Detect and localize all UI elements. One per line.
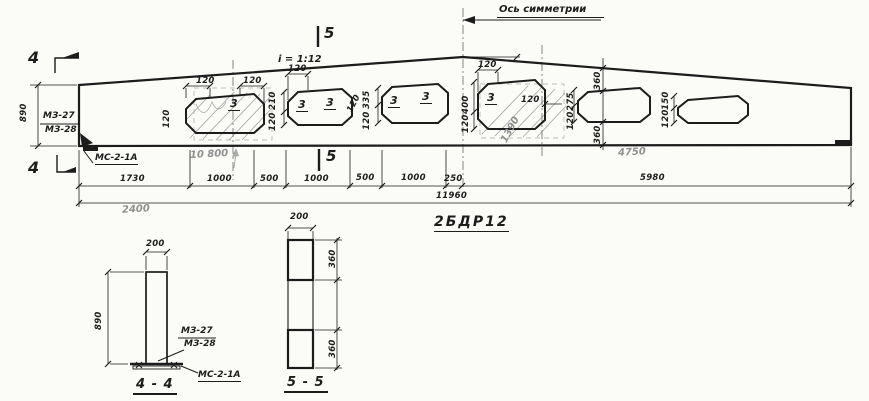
dim-5980: 5980 [640, 174, 665, 183]
dim-120-o1-right-top: 120 [243, 77, 262, 86]
section-5-5-title: 5 - 5 [284, 376, 328, 393]
part-label-mz27-section4: МЗ-27 [181, 327, 213, 336]
dim-500-b: 500 [356, 174, 375, 183]
part-label-mz28-elevation: МЗ-28 [45, 126, 77, 135]
dim-360-bottom: 360 [594, 125, 603, 144]
opening-number-o2a: 3 [296, 99, 308, 112]
dim-200-section4: 200 [146, 240, 165, 249]
axis-of-symmetry-label: Ось симметрии [497, 5, 604, 18]
bearing-plate-right [835, 140, 851, 145]
section4-marker-top: 4 [28, 50, 39, 66]
technical-drawing-sheet: 1201201202101201201203351201204001201201… [0, 0, 869, 401]
drawing-canvas [0, 0, 869, 401]
dim-890-elevation: 890 [20, 103, 29, 122]
slope-label: i = 1:12 [278, 55, 322, 65]
drawing-title: 2БДР12 [434, 215, 509, 232]
section4-marker-bottom: 4 [28, 160, 39, 176]
pencil-2400: 2400 [122, 204, 150, 215]
section5-marker-top: 5 [324, 26, 334, 41]
dim-360-top: 360 [594, 71, 603, 90]
section4-flag-top [55, 58, 79, 73]
opening-number-o1: 3 [228, 98, 240, 111]
part-label-mz27-elevation: МЗ-27 [43, 112, 75, 121]
dim-890-section4: 890 [95, 311, 104, 330]
dim-11960: 11960 [436, 192, 467, 201]
dim-120-o2-top: 120 [288, 65, 307, 74]
dim-120-o5: 120 [567, 111, 576, 130]
dimension-lines [30, 54, 854, 207]
part-label-ms21a-section4: МС-2-1А [198, 371, 241, 382]
opening-number-o3a: 3 [388, 95, 400, 108]
dim-120-o1-left: 120 [163, 109, 172, 128]
web-opening-1 [186, 94, 264, 133]
dim-200-section5: 200 [290, 213, 309, 222]
dim-1000-a: 1000 [207, 175, 232, 184]
dim-120-o2: 120 [269, 112, 278, 131]
section-4-4-view [105, 249, 183, 369]
dim-335-o3: 335 [363, 90, 372, 109]
dim-120-o1-left-top: 120 [196, 77, 215, 86]
dim-150-o6: 150 [662, 91, 671, 110]
dim-120-o4-top: 120 [478, 61, 497, 70]
dim-1000-c: 1000 [401, 174, 426, 183]
dim-360-section5-top: 360 [329, 249, 338, 268]
pencil-4750: 4750 [618, 147, 646, 158]
opening-number-o3b: 3 [420, 91, 432, 104]
part-label-ms21a-elevation: МС-2-1А [95, 154, 138, 165]
dim-120-o4: 120 [462, 114, 471, 133]
dim-1000-b: 1000 [304, 175, 329, 184]
section-4-4-title: 4 - 4 [133, 378, 177, 395]
dim-400-o4: 400 [462, 95, 471, 114]
dim-500-a: 500 [260, 175, 279, 184]
dim-1730: 1730 [120, 175, 145, 184]
opening-number-o4: 3 [485, 92, 497, 105]
dim-120-o6: 120 [662, 109, 671, 128]
dim-120-o4-right: 120 [521, 96, 540, 105]
dim-275-o5: 275 [567, 92, 576, 111]
section5-marker-bottom: 5 [326, 149, 336, 164]
dim-120-o3: 120 [363, 111, 372, 130]
dim-360-section5-bottom: 360 [329, 339, 338, 358]
part-label-mz28-section4: МЗ-28 [184, 340, 216, 349]
opening-number-o2b: 3 [324, 97, 336, 110]
web-opening-6 [678, 96, 748, 123]
web-opening-5 [578, 88, 650, 122]
dim-210-o2: 210 [269, 91, 278, 110]
dim-250: 250 [444, 175, 463, 184]
bearing-plate-left [83, 146, 98, 151]
pencil-10800: 10 800 [190, 149, 229, 161]
